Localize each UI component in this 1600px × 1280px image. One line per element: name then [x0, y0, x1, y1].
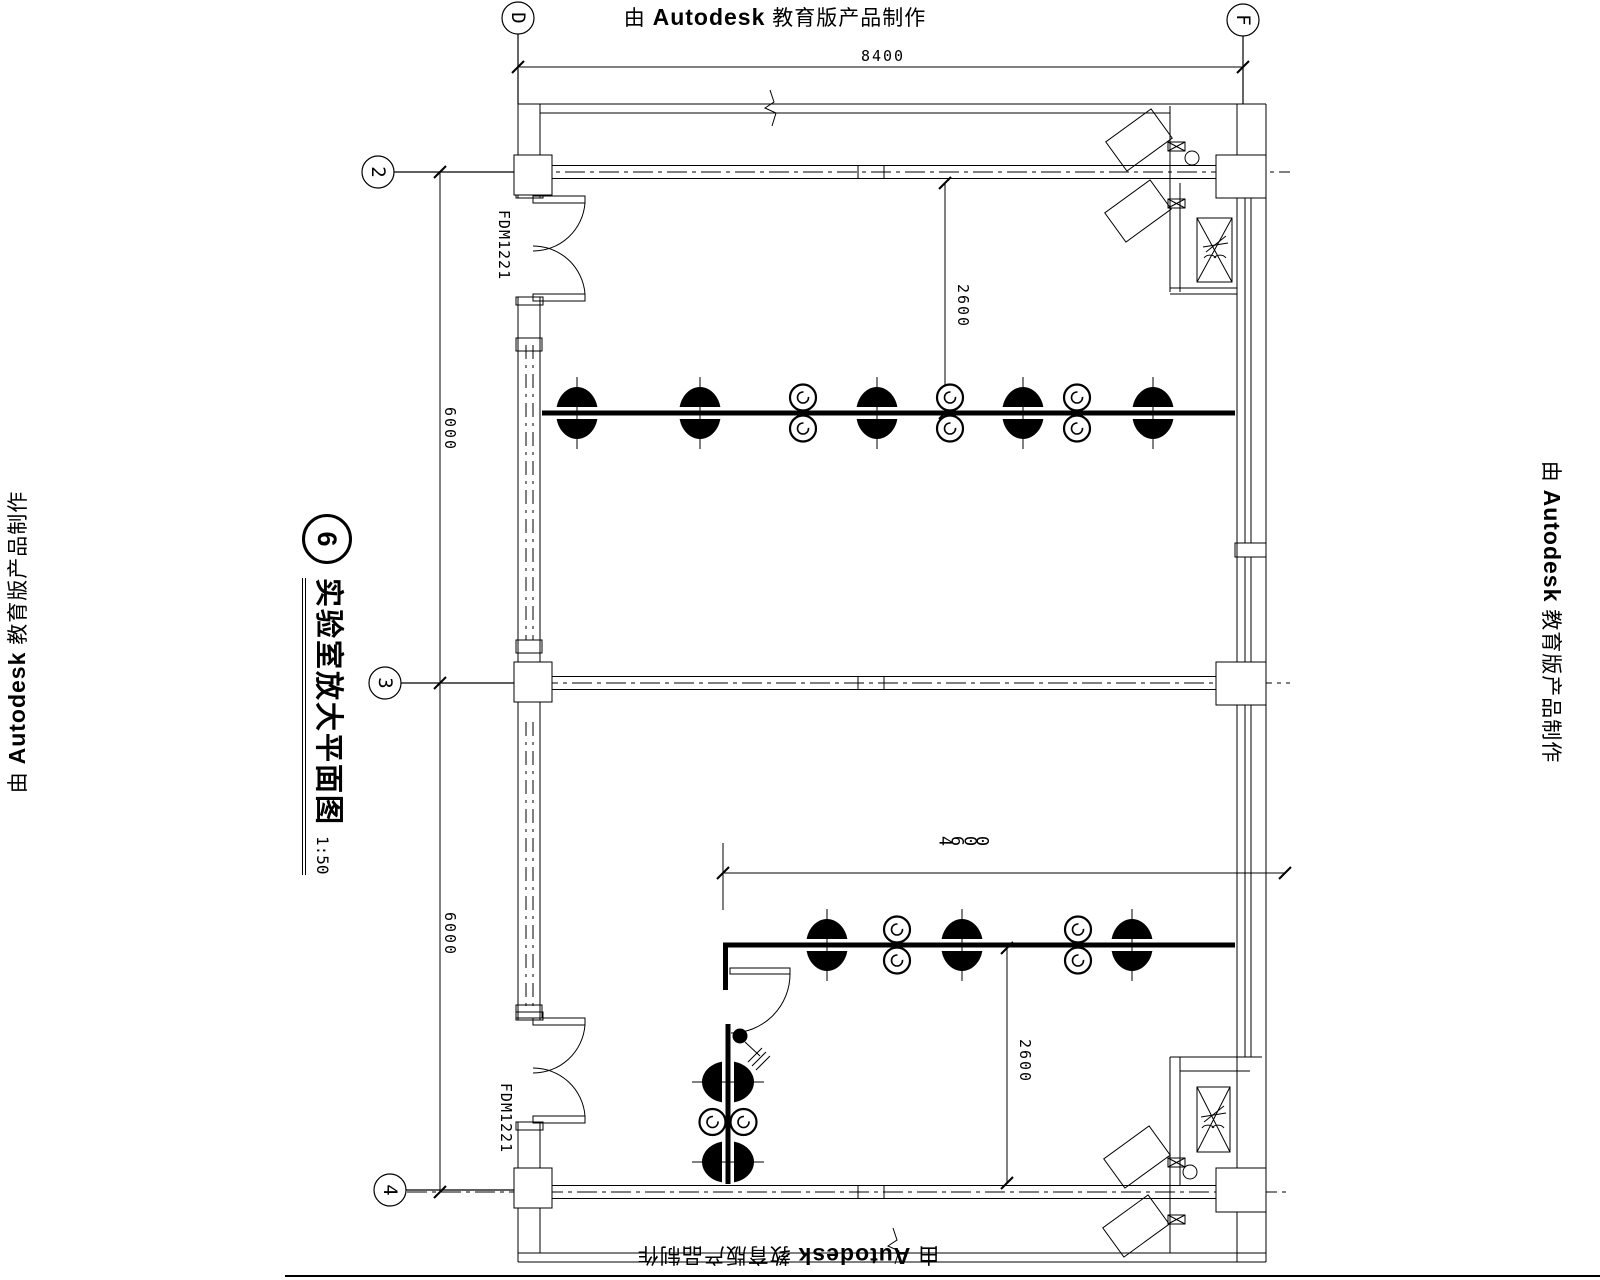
title-block: 6 实验室放大平面图 1:50: [302, 514, 352, 875]
door-label-top: FDM1221: [495, 210, 513, 280]
drawing-title: 实验室放大平面图: [310, 578, 352, 826]
dim-2600-bottom: 2600: [1016, 1039, 1034, 1083]
dim-6000-upper: 6000: [441, 407, 459, 451]
watermark-bottom: 由 Autodesk 教育版产品制作: [637, 1241, 939, 1271]
sink-basin: [678, 377, 722, 449]
floor-plan-drawing: [0, 0, 1600, 1280]
wall-break-symbol: [765, 90, 776, 126]
dim-8400: 8400: [861, 47, 905, 65]
detail-number-bubble: 6: [302, 514, 352, 564]
sink-basin: [1131, 377, 1175, 449]
drawing-scale: 1:50: [310, 836, 332, 875]
sink-basin: [692, 1060, 764, 1104]
interior-door: [730, 968, 790, 1033]
double-door-bottom: [533, 1018, 585, 1123]
sink-basin: [1110, 909, 1154, 981]
grid-label-4: 4: [379, 1184, 401, 1195]
sink-basin: [692, 1140, 764, 1184]
dim-2600-top: 2600: [954, 284, 972, 328]
ac-unit-symbol: [1197, 1087, 1230, 1152]
sink-basin: [940, 909, 984, 981]
ac-unit-symbol: [1197, 218, 1232, 282]
grid-label-f: F: [1232, 14, 1254, 25]
dim-4600: 4600: [939, 832, 988, 852]
watermark-left: 由 Autodesk 教育版产品制作: [2, 491, 32, 793]
grid-label-d: D: [507, 12, 529, 23]
bench-fixtures: [555, 377, 1175, 1184]
pipe-riser: [1183, 1165, 1197, 1179]
sink-basin: [805, 909, 849, 981]
lab-benches: [542, 413, 1235, 1176]
dimension-lines: [434, 61, 1291, 1198]
grid-label-2: 2: [367, 166, 389, 177]
interior-walls: [552, 166, 1216, 1199]
grid-bubbles: [362, 2, 1259, 1206]
sink-basin: [555, 377, 599, 449]
grid-label-3: 3: [374, 677, 396, 688]
pipe-riser: [1185, 151, 1199, 165]
dim-6000-lower: 6000: [441, 912, 459, 956]
watermark-right: 由 Autodesk 教育版产品制作: [1537, 461, 1567, 763]
double-door-top: [533, 196, 585, 301]
watermark-top: 由 Autodesk 教育版产品制作: [624, 2, 926, 32]
title-underline: 实验室放大平面图 1:50: [302, 578, 352, 875]
sink-basin: [855, 377, 899, 449]
sink-basin: [1001, 377, 1045, 449]
door-label-bottom: FDM1221: [497, 1083, 515, 1153]
cad-sheet: 由 Autodesk 教育版产品制作 由 Autodesk 教育版产品制作 由 …: [0, 0, 1600, 1280]
